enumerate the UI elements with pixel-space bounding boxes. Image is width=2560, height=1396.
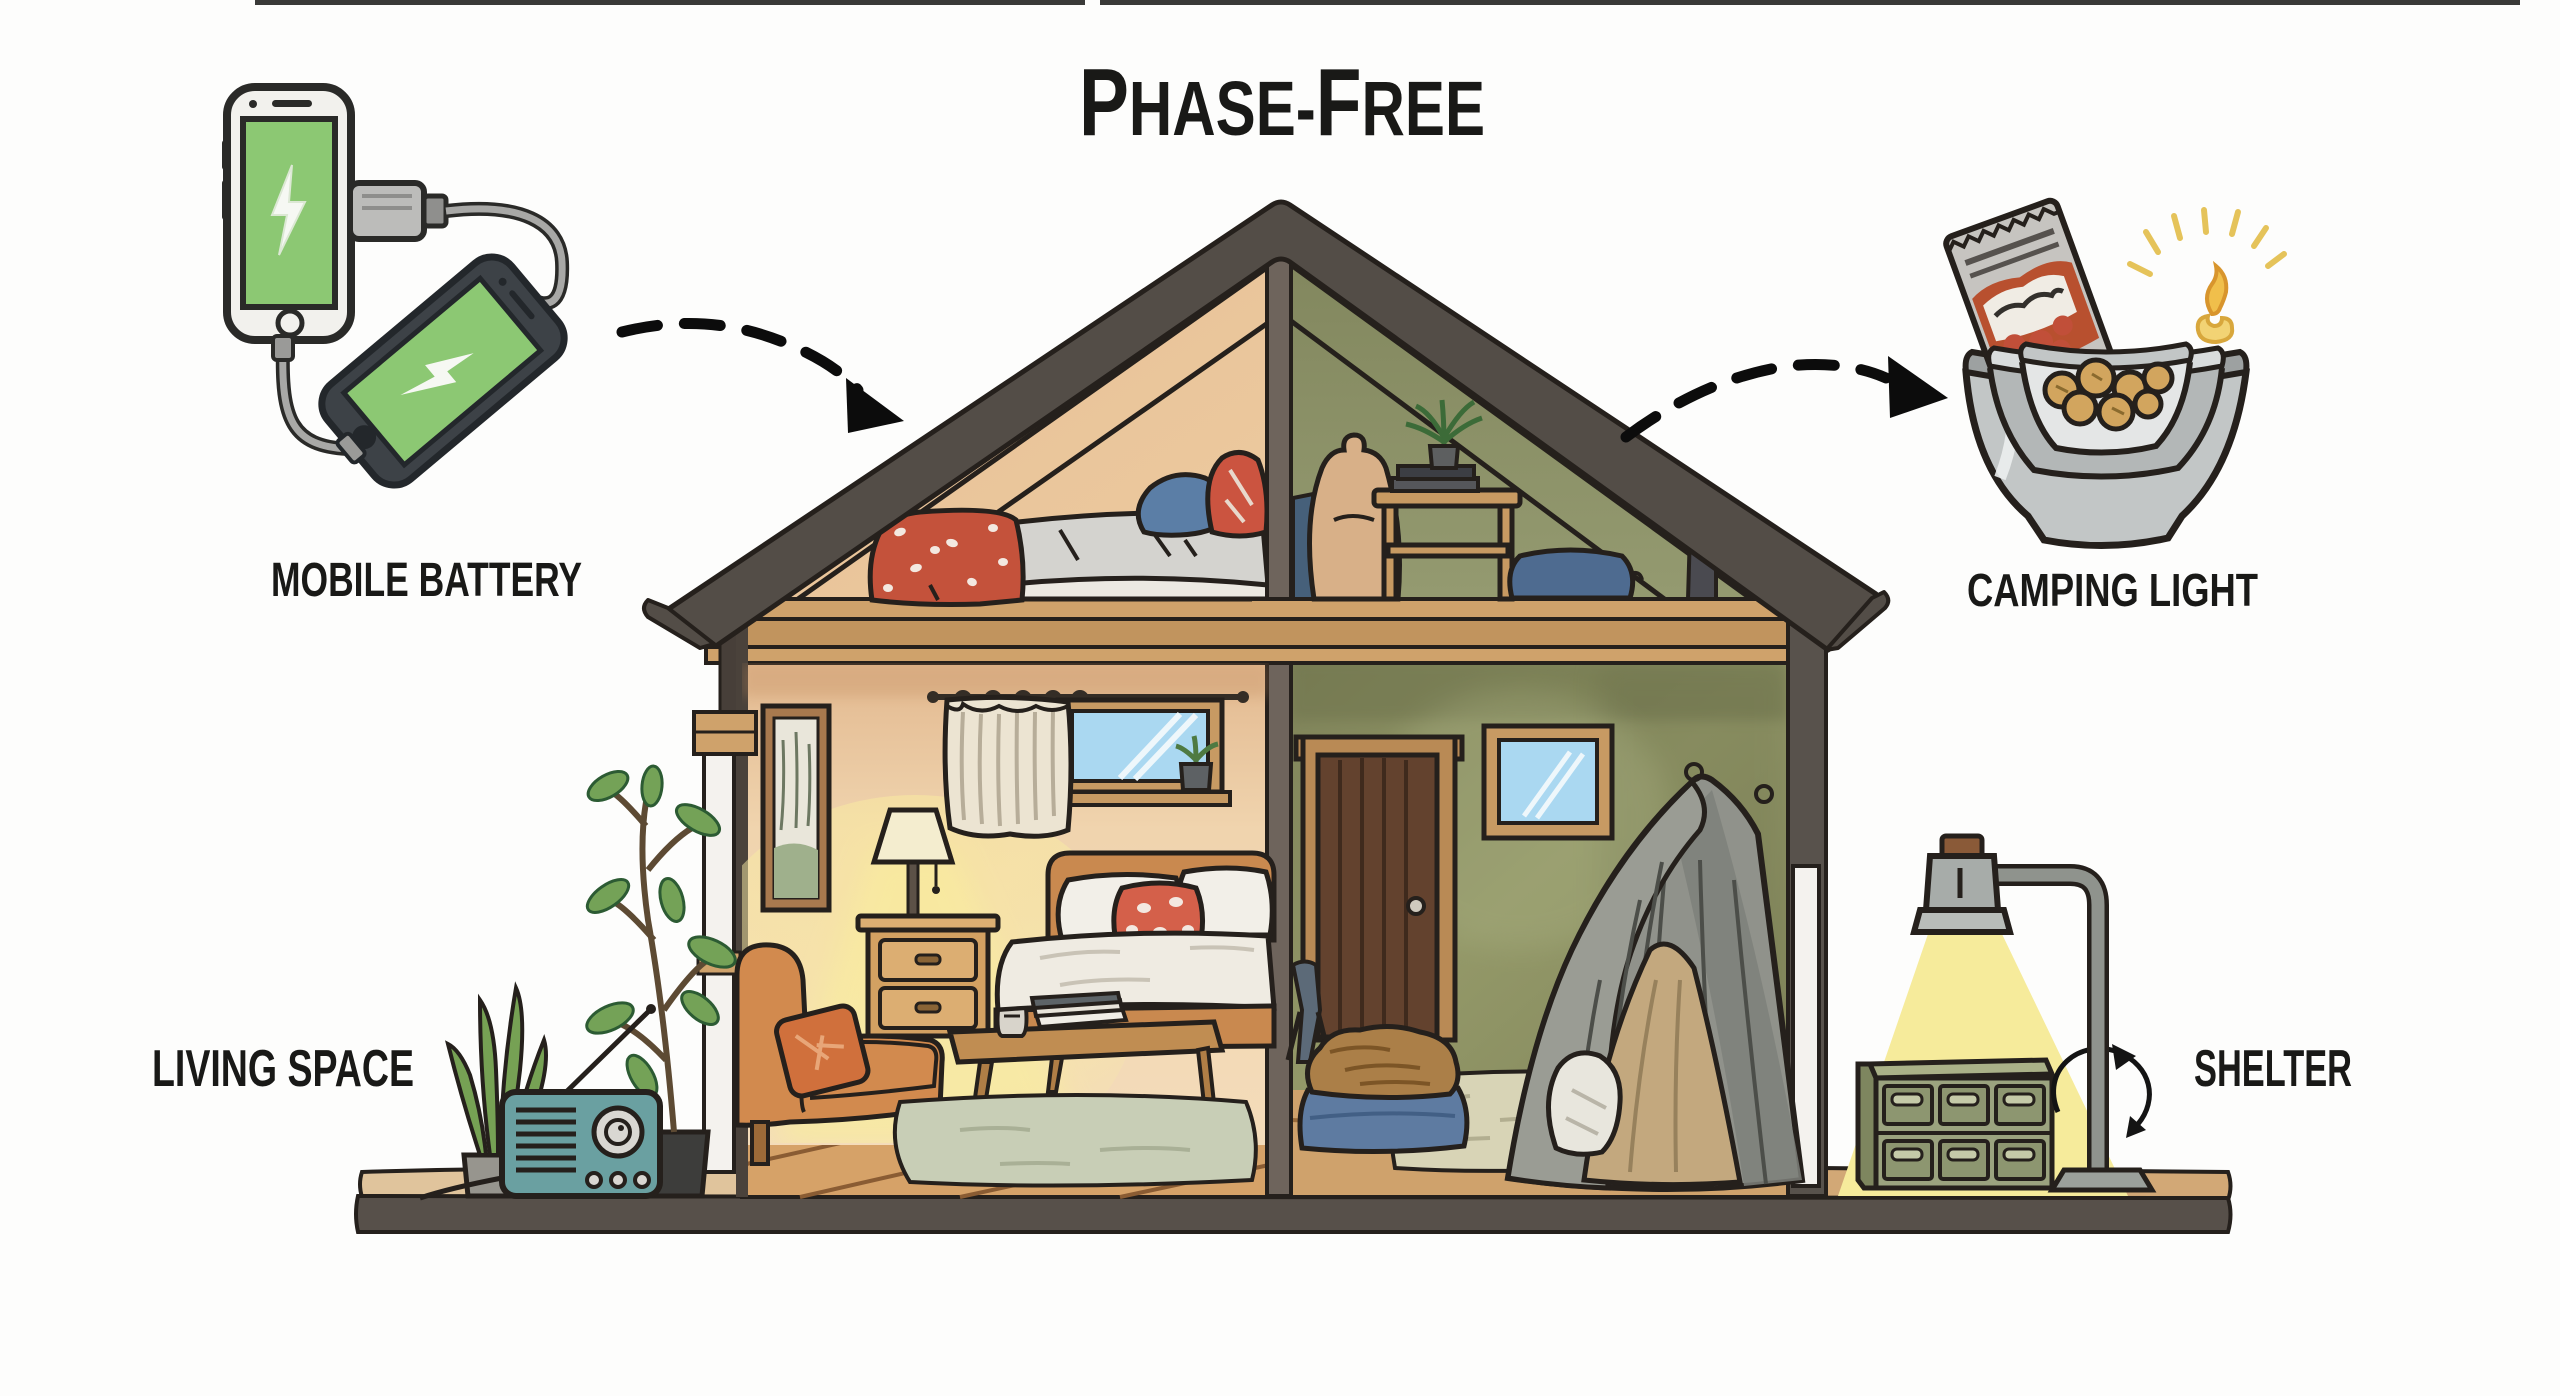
svg-text:CAMPING LIGHT: CAMPING LIGHT — [1967, 564, 2258, 616]
svg-text:LIVING SPACE: LIVING SPACE — [152, 1040, 414, 1098]
svg-text:PHASE-FREE: PHASE-FREE — [1079, 49, 1485, 156]
svg-text:MOBILE BATTERY: MOBILE BATTERY — [271, 554, 582, 607]
svg-text:SHELTER: SHELTER — [2194, 1040, 2352, 1098]
